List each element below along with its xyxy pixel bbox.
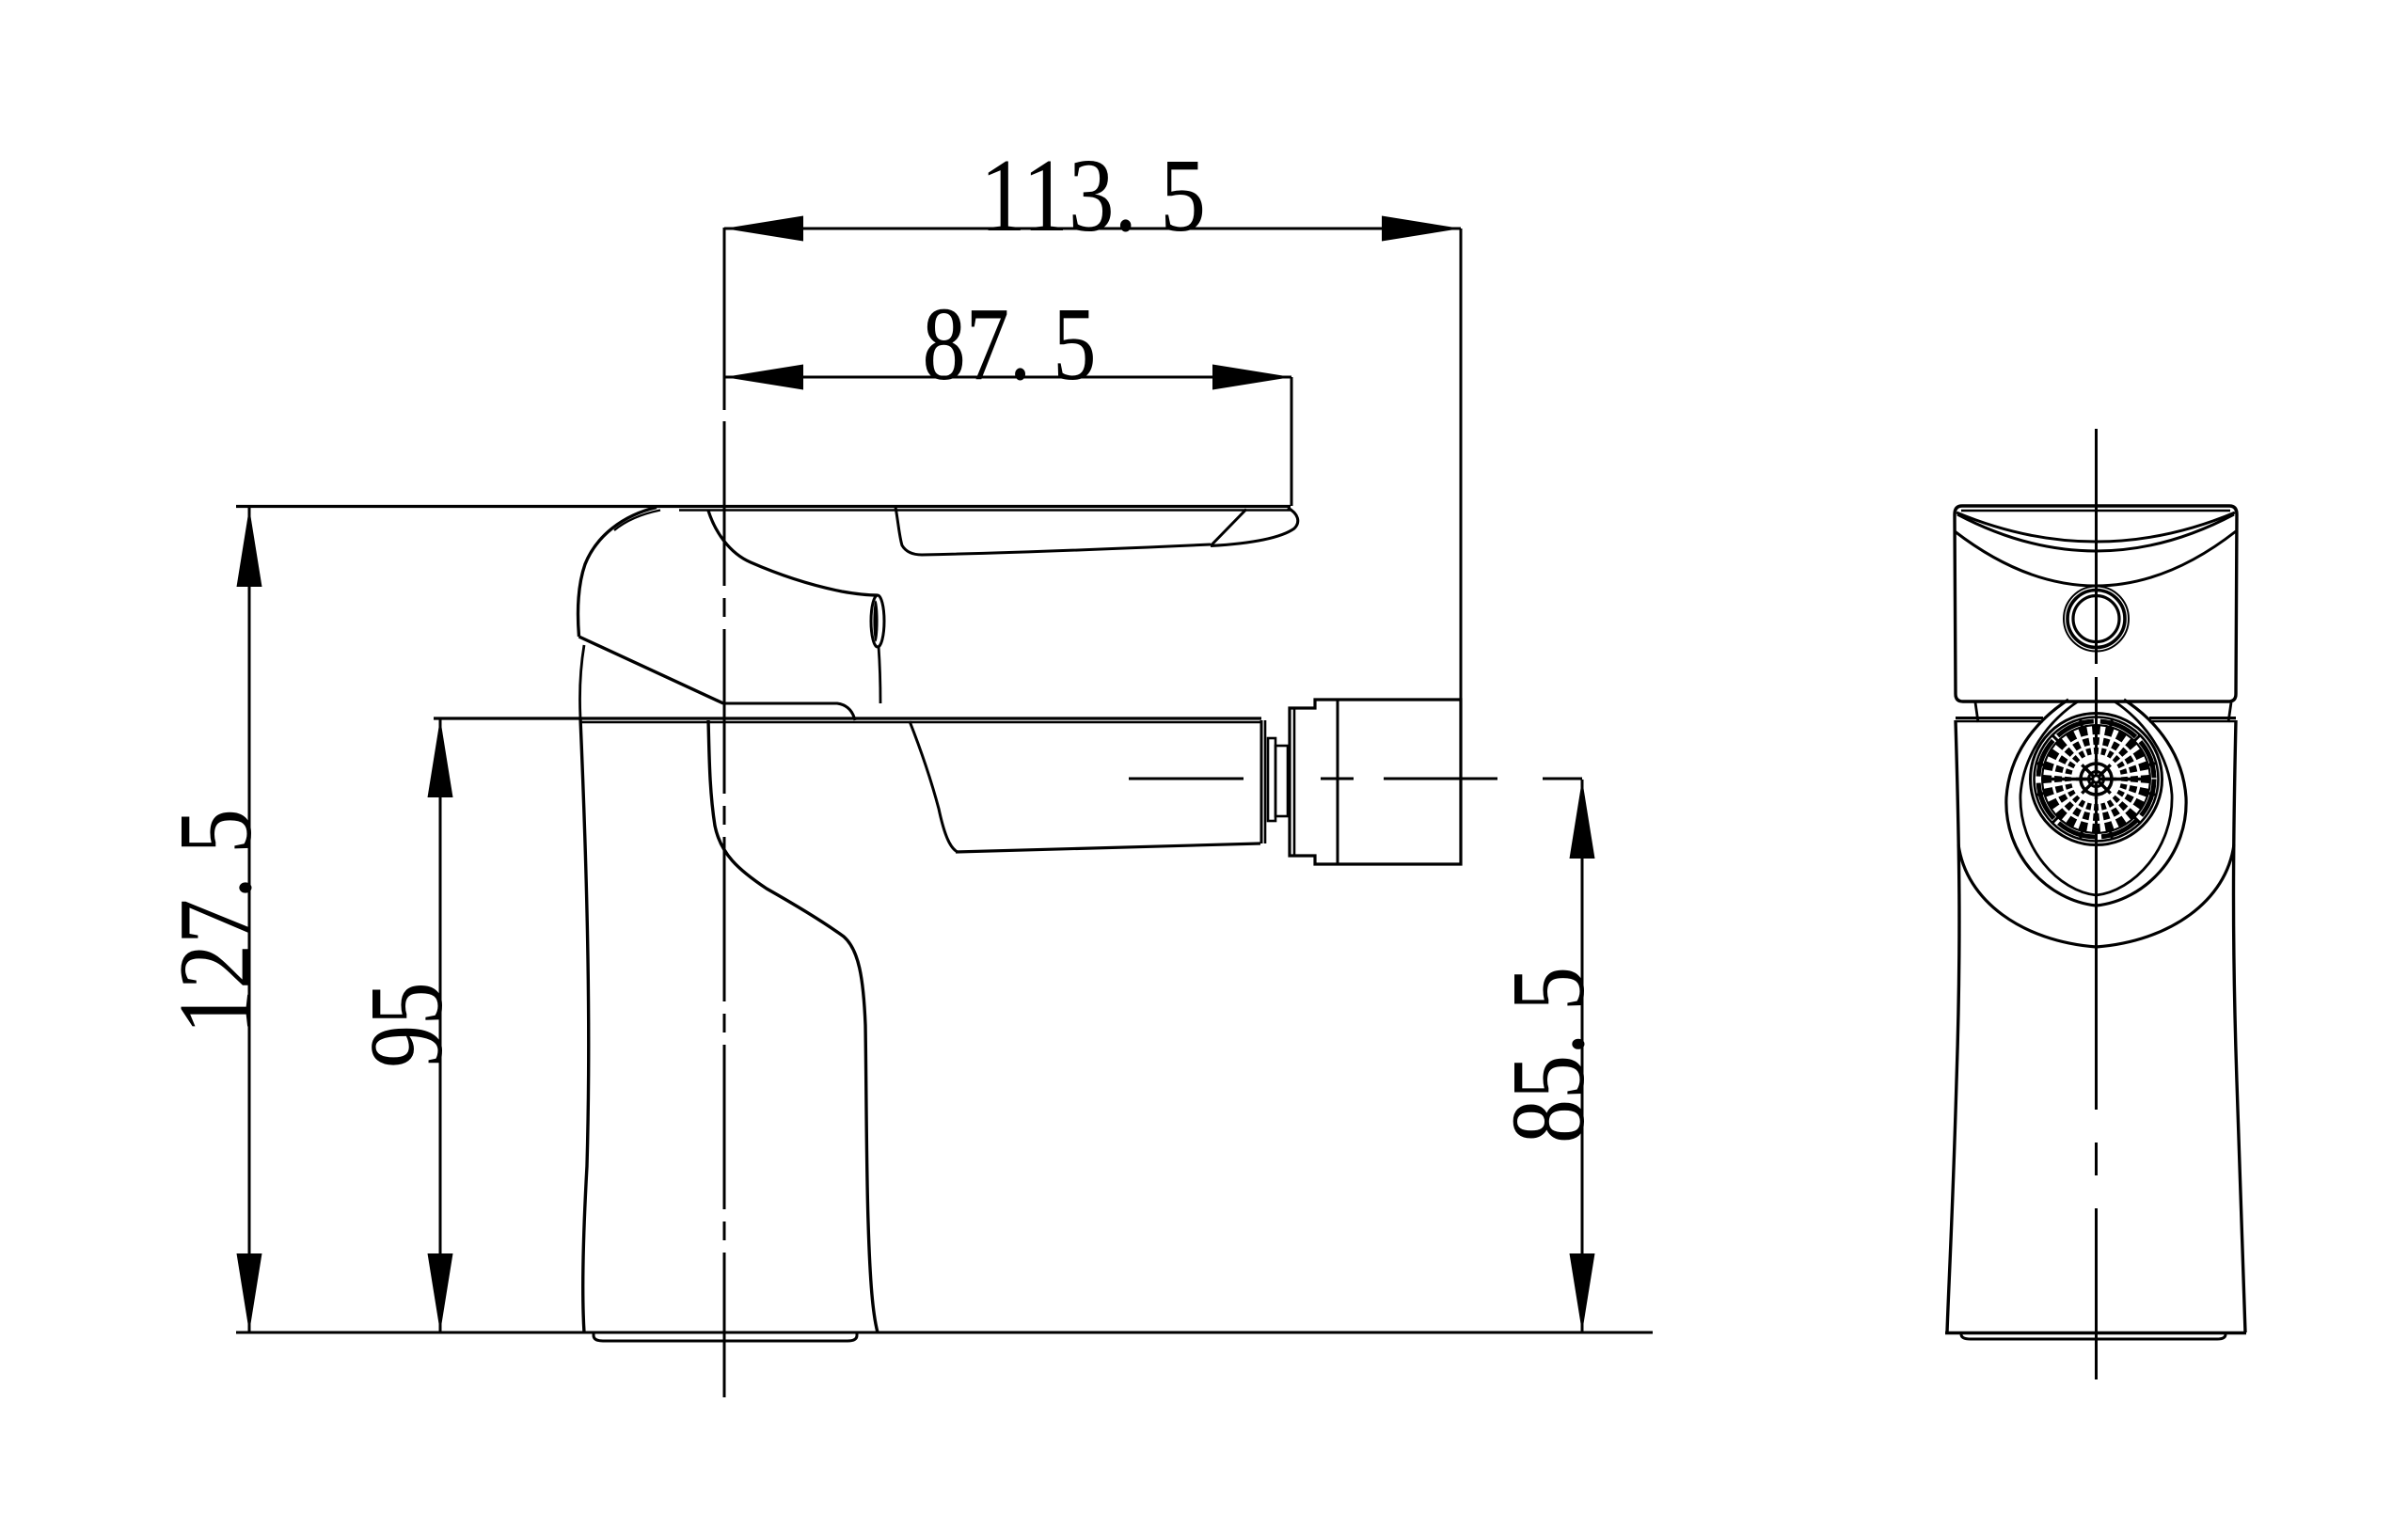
svg-text:87. 5: 87. 5 (923, 287, 1097, 402)
svg-text:113. 5: 113. 5 (980, 138, 1206, 254)
svg-text:95: 95 (349, 983, 465, 1068)
svg-text:85. 5: 85. 5 (1491, 967, 1607, 1143)
svg-text:127. 5: 127. 5 (158, 809, 274, 1034)
